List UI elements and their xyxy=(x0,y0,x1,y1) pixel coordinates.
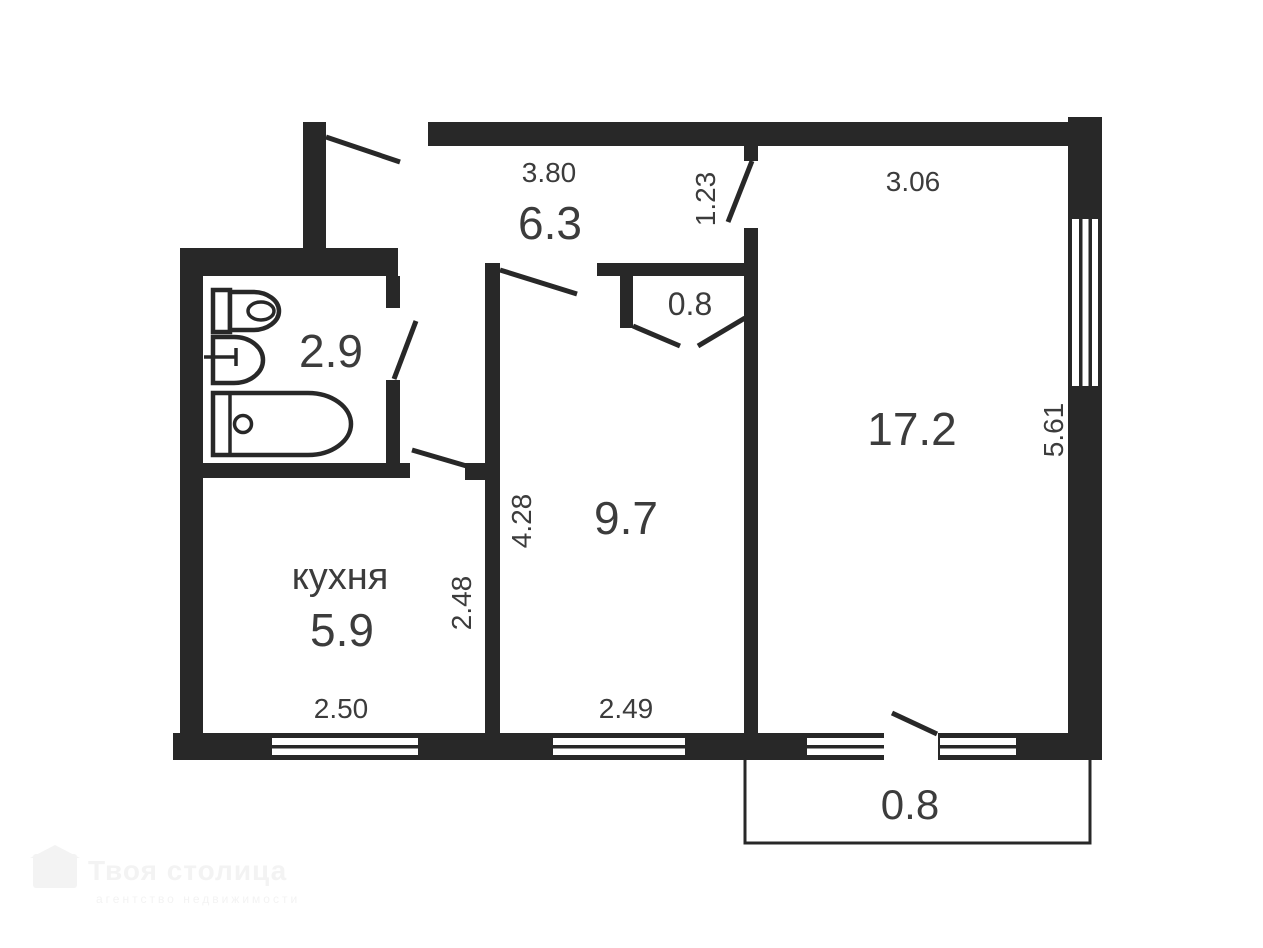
kitchen-door-swing xyxy=(412,450,470,467)
wall-closet-top xyxy=(597,263,758,276)
wall-midroom-largeroom xyxy=(744,228,758,733)
sink-icon xyxy=(213,337,263,383)
window-right-frame-line-1 xyxy=(1079,219,1083,386)
wall-top xyxy=(428,122,1072,146)
dim-kitchen-height: 2.48 xyxy=(446,576,477,631)
label-hallway-area: 6.3 xyxy=(518,197,582,249)
window-kitchen-frame-line xyxy=(272,745,418,749)
wall-kitchen-midroom xyxy=(485,263,500,733)
wall-bathroom-right-upper xyxy=(386,276,400,308)
wall-bathroom-bottom xyxy=(200,463,410,478)
floor-plan-svg: 3.80 3.06 1.23 5.61 4.28 2.48 2.50 2.49 … xyxy=(0,0,1263,948)
balcony-door-opening xyxy=(884,733,938,760)
label-kitchen-name: кухня xyxy=(292,556,389,598)
watermark-logo-icon xyxy=(33,854,77,888)
dim-largeroom-width: 3.06 xyxy=(886,166,941,197)
wall-closet-left-stub xyxy=(620,276,633,328)
window-right-glass xyxy=(1072,219,1098,386)
label-bathroom-area: 2.9 xyxy=(299,325,363,377)
watermark-tagline: агентство недвижимости xyxy=(96,892,300,906)
closet-door-left-swing xyxy=(633,326,680,346)
window-largeroom-a-frame-line xyxy=(807,745,884,749)
label-kitchen-area: 5.9 xyxy=(310,604,374,656)
window-largeroom-b-frame-line xyxy=(940,745,1016,749)
dim-midroom-width: 2.49 xyxy=(599,693,654,724)
watermark: Твоя столица агентство недвижимости xyxy=(30,845,300,906)
bathroom-door-swing xyxy=(394,321,416,379)
floor-plan-page: 3.80 3.06 1.23 5.61 4.28 2.48 2.50 2.49 … xyxy=(0,0,1263,948)
dim-kitchen-width: 2.50 xyxy=(314,693,369,724)
label-balcony-area: 0.8 xyxy=(881,781,939,828)
window-midroom-frame-line xyxy=(553,745,685,749)
dim-midroom-height: 4.28 xyxy=(506,494,537,549)
dim-largeroom-height: 5.61 xyxy=(1038,403,1069,458)
toilet-bowl-icon xyxy=(230,292,279,330)
watermark-brand: Твоя столица xyxy=(88,855,287,886)
labels: 3.80 3.06 1.23 5.61 4.28 2.48 2.50 2.49 … xyxy=(292,157,1069,828)
closet-door-right-swing xyxy=(698,318,745,346)
wall-left xyxy=(180,248,203,760)
wall-bathroom-right-lower xyxy=(386,380,400,464)
doors xyxy=(326,137,937,734)
label-largeroom-area: 17.2 xyxy=(867,403,957,455)
window-right-frame-line-2 xyxy=(1089,219,1093,386)
largeroom-door-swing xyxy=(728,161,752,222)
wall-bathroom-top xyxy=(180,248,398,276)
dim-largeroom-door: 1.23 xyxy=(690,172,721,227)
wall-top-stub xyxy=(744,146,758,161)
balcony-door-swing xyxy=(892,713,937,734)
wall-right xyxy=(1068,117,1102,760)
label-closet-area: 0.8 xyxy=(668,286,712,322)
dim-hall-width: 3.80 xyxy=(522,157,577,188)
toilet-tank-icon xyxy=(213,290,230,332)
midroom-door-swing xyxy=(500,270,577,294)
label-midroom-area: 9.7 xyxy=(594,492,658,544)
entry-door-swing xyxy=(326,137,400,162)
